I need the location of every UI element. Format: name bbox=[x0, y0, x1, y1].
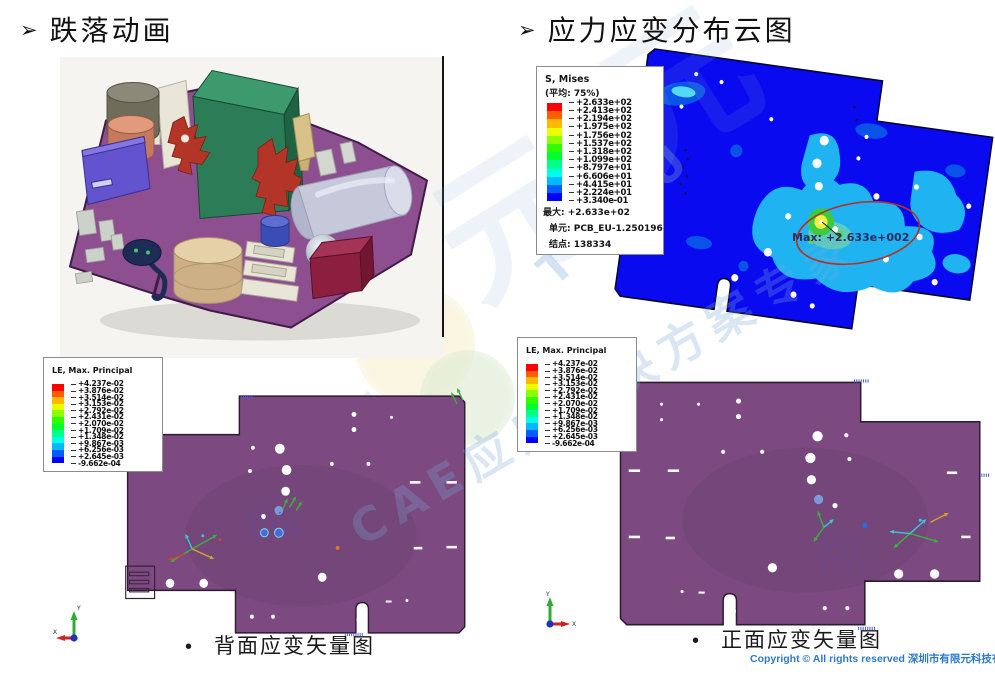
legend-tick bbox=[71, 410, 76, 411]
strain-speckle bbox=[291, 520, 293, 522]
hole bbox=[271, 615, 275, 619]
legend-color-band bbox=[547, 103, 562, 111]
legend-color-band bbox=[52, 450, 64, 457]
hole bbox=[894, 569, 903, 578]
strain-speckle bbox=[253, 525, 255, 527]
pad bbox=[446, 546, 457, 549]
strain-speckle bbox=[832, 557, 834, 559]
legend-color-band bbox=[526, 364, 538, 371]
hole bbox=[930, 569, 939, 578]
strain-speckle bbox=[285, 530, 287, 532]
hole bbox=[768, 563, 777, 572]
legend-color-band bbox=[52, 417, 64, 424]
strain-speckle bbox=[259, 511, 261, 513]
legend-color-band bbox=[52, 457, 64, 464]
slide: 元 元 TEMU CAE应用解决方案专家 ➢ 跌落动画 ➢ 应力应变分布云图 bbox=[0, 0, 995, 675]
marker-dot bbox=[201, 534, 204, 537]
hole bbox=[823, 606, 827, 610]
board-shading bbox=[682, 448, 928, 593]
strain-speckle bbox=[838, 544, 840, 546]
strain-speckle bbox=[293, 526, 295, 528]
legend-color-band bbox=[526, 410, 538, 417]
arrow-bullet-icon: ➢ bbox=[518, 16, 536, 46]
legend-title: S, Mises bbox=[545, 74, 589, 85]
strain-speckle bbox=[858, 561, 860, 563]
legend-tick bbox=[71, 391, 76, 392]
legend-color-band bbox=[547, 128, 562, 136]
front-caption-text: 正面应变矢量图 bbox=[721, 624, 882, 654]
legend-tick bbox=[545, 371, 550, 372]
strain-speckle bbox=[828, 543, 830, 545]
strain-speckle bbox=[854, 547, 856, 549]
legend-tick bbox=[569, 118, 574, 119]
strain-speckle bbox=[820, 550, 822, 552]
legend-tick-label: +3.340e-01 bbox=[569, 196, 628, 206]
legend-tick bbox=[545, 423, 550, 424]
stress-legend: S, Mises (平均: 75%) 最大: +2.633e+02 单元: PC… bbox=[536, 66, 664, 255]
strain-speckle bbox=[270, 516, 272, 518]
strain-speckle bbox=[834, 565, 836, 567]
strain-speckle bbox=[824, 564, 826, 566]
strain-speckle bbox=[849, 568, 851, 570]
legend-tick bbox=[545, 397, 550, 398]
copyright-line: Copyright © All rights reserved 深圳市有限元科技… bbox=[750, 651, 995, 666]
strain-speckle bbox=[250, 515, 252, 517]
x-axis-label: X bbox=[53, 629, 57, 636]
legend-color-band bbox=[547, 185, 562, 193]
legend-color-band bbox=[52, 410, 64, 417]
legend-tick bbox=[71, 417, 76, 418]
max-annotation-text: Max: +2.633e+002 bbox=[792, 231, 909, 244]
strain-speckle bbox=[818, 543, 820, 545]
legend-tick bbox=[569, 135, 574, 136]
strain-speckle bbox=[836, 537, 838, 539]
legend-tick bbox=[71, 450, 76, 451]
pad bbox=[410, 481, 421, 484]
legend-title: LE, Max. Principal bbox=[52, 366, 132, 375]
strain-speckle bbox=[261, 517, 263, 519]
relay-stack bbox=[241, 241, 299, 301]
legend-tick-label: -9.662e-04 bbox=[71, 459, 120, 468]
strain-legend-back: LE, Max. Principal +4.237e-02+3.876e-02+… bbox=[43, 357, 163, 472]
pcb-3d-model bbox=[60, 57, 443, 358]
pad bbox=[666, 537, 675, 540]
strain-speckle bbox=[269, 513, 271, 515]
hole bbox=[352, 427, 357, 432]
marker-dot bbox=[219, 538, 222, 541]
strain-speckle bbox=[286, 533, 288, 535]
x-axis-label: X bbox=[572, 621, 576, 628]
legend-tick bbox=[569, 159, 574, 160]
board-shading bbox=[185, 465, 416, 607]
legend-color-band bbox=[526, 437, 538, 444]
strain-speckle bbox=[264, 526, 266, 528]
hole bbox=[681, 590, 684, 593]
back-caption: • 背面应变矢量图 bbox=[185, 630, 375, 660]
legend-tick bbox=[545, 377, 550, 378]
legend-tick bbox=[545, 403, 550, 404]
axis-triad-front: Y X bbox=[532, 590, 578, 634]
legend-tick bbox=[545, 417, 550, 418]
strain-speckle bbox=[294, 529, 296, 531]
legend-tick bbox=[569, 184, 574, 185]
back-strain-vector-plot bbox=[118, 384, 484, 642]
marker-dot bbox=[919, 519, 922, 522]
marker-dot bbox=[336, 546, 340, 550]
strain-speckle bbox=[290, 514, 292, 516]
right-title-text: 应力应变分布云图 bbox=[548, 16, 796, 48]
legend-tick bbox=[569, 143, 574, 144]
legend-color-band bbox=[526, 417, 538, 424]
hole bbox=[814, 495, 823, 504]
legend-tick bbox=[71, 463, 76, 464]
legend-tick bbox=[569, 102, 574, 103]
legend-tick-label: -9.662e-04 bbox=[545, 439, 594, 448]
strain-speckle bbox=[255, 531, 257, 533]
strain-speckle bbox=[282, 521, 284, 523]
strain-speckle bbox=[271, 519, 273, 521]
strain-speckle bbox=[272, 522, 274, 524]
hole bbox=[844, 433, 848, 437]
strain-speckle bbox=[860, 568, 862, 570]
hole bbox=[845, 606, 849, 610]
strain-speckle bbox=[260, 514, 262, 516]
pad bbox=[629, 536, 640, 539]
hole bbox=[166, 579, 175, 588]
legend-tick bbox=[71, 404, 76, 405]
hole bbox=[281, 487, 290, 496]
legend-tick bbox=[71, 384, 76, 385]
pad bbox=[668, 469, 679, 472]
strain-ring bbox=[275, 528, 284, 537]
hole bbox=[275, 444, 285, 454]
pad bbox=[446, 481, 457, 484]
hole bbox=[406, 599, 409, 602]
hole bbox=[318, 573, 327, 582]
front-caption: • 正面应变矢量图 bbox=[692, 624, 882, 654]
strain-speckle bbox=[291, 517, 293, 519]
legend-tick bbox=[569, 176, 574, 177]
hole bbox=[390, 416, 393, 419]
legend-color-band bbox=[52, 404, 64, 411]
strain-speckle bbox=[830, 550, 832, 552]
legend-color-band bbox=[547, 160, 562, 168]
legend-tick bbox=[569, 192, 574, 193]
hole bbox=[199, 579, 208, 588]
strain-speckle bbox=[289, 511, 291, 513]
legend-max-line: 最大: +2.633e+02 bbox=[543, 205, 630, 218]
strain-speckle bbox=[268, 510, 270, 512]
legend-color-band bbox=[526, 397, 538, 404]
hole bbox=[697, 403, 700, 406]
pad bbox=[386, 601, 392, 603]
strain-speckle bbox=[864, 547, 866, 549]
strain-speckle bbox=[841, 539, 843, 541]
legend-color-band bbox=[52, 424, 64, 431]
hole bbox=[660, 418, 663, 421]
hole bbox=[731, 609, 736, 614]
legend-color-band bbox=[526, 371, 538, 378]
legend-color-band bbox=[526, 404, 538, 411]
legend-node-line: 结点: 138334 bbox=[549, 237, 611, 250]
legend-color-band bbox=[547, 177, 562, 185]
hole bbox=[250, 615, 254, 619]
strain-speckle bbox=[248, 509, 250, 511]
dot-bullet-icon: • bbox=[185, 636, 192, 659]
strain-speckle bbox=[283, 524, 285, 526]
legend-tick bbox=[569, 110, 574, 111]
strain-speckle bbox=[844, 565, 846, 567]
legend-tick bbox=[545, 443, 550, 444]
strain-speckle bbox=[287, 536, 289, 538]
legend-tick bbox=[569, 200, 574, 201]
strain-speckle bbox=[273, 525, 275, 527]
axis-triad-back: Y X bbox=[52, 604, 98, 648]
legend-color-band bbox=[526, 390, 538, 397]
strain-speckle bbox=[862, 540, 864, 542]
strain-speckle bbox=[263, 523, 265, 525]
legend-tick bbox=[71, 397, 76, 398]
legend-color-band bbox=[526, 423, 538, 430]
capacitor-beige bbox=[174, 238, 242, 304]
strain-legend-front: LE, Max. Principal +4.237e-02+3.876e-02+… bbox=[517, 337, 637, 452]
pad bbox=[629, 469, 640, 472]
strain-speckle bbox=[249, 512, 251, 514]
legend-color-band bbox=[547, 136, 562, 144]
strain-speckle bbox=[840, 551, 842, 553]
y-axis-label: Y bbox=[545, 591, 550, 598]
hole bbox=[832, 503, 837, 508]
hole bbox=[352, 412, 357, 417]
strain-speckle bbox=[251, 518, 253, 520]
strain-speckle bbox=[847, 561, 849, 563]
hole bbox=[807, 475, 816, 484]
hole bbox=[721, 450, 725, 454]
legend-color-band bbox=[526, 384, 538, 391]
strain-speckle bbox=[292, 523, 294, 525]
pad bbox=[699, 592, 705, 594]
strain-ring bbox=[261, 529, 269, 537]
legend-tick bbox=[569, 126, 574, 127]
hole bbox=[736, 398, 741, 403]
strain-speckle bbox=[821, 568, 823, 570]
legend-tick bbox=[71, 443, 76, 444]
section-divider bbox=[442, 56, 444, 337]
legend-color-band bbox=[526, 430, 538, 437]
legend-color-band bbox=[547, 169, 562, 177]
legend-tick bbox=[545, 436, 550, 437]
legend-color-band bbox=[547, 111, 562, 119]
strain-speckle bbox=[256, 534, 258, 536]
capacitor-blue bbox=[261, 216, 289, 247]
strain-speckle bbox=[257, 537, 259, 539]
hole bbox=[812, 431, 822, 441]
hole bbox=[805, 453, 815, 463]
hole bbox=[356, 617, 361, 622]
marker-dot bbox=[862, 523, 867, 528]
hole bbox=[366, 462, 370, 466]
legend-tick bbox=[545, 384, 550, 385]
legend-tick bbox=[545, 410, 550, 411]
legend-color-band bbox=[52, 391, 64, 398]
drop-animation-panel bbox=[60, 57, 443, 358]
hole bbox=[660, 403, 663, 406]
dot-bullet-icon: • bbox=[692, 630, 699, 653]
legend-tick bbox=[71, 456, 76, 457]
legend-color-band bbox=[52, 437, 64, 444]
legend-title: LE, Max. Principal bbox=[526, 346, 606, 355]
strain-speckle bbox=[842, 558, 844, 560]
legend-color-band bbox=[526, 377, 538, 384]
legend-color-band bbox=[547, 119, 562, 127]
strain-speckle bbox=[254, 528, 256, 530]
hole bbox=[275, 506, 284, 515]
strain-speckle bbox=[295, 532, 297, 534]
legend-tick bbox=[545, 430, 550, 431]
pad bbox=[947, 471, 957, 474]
legend-color-band bbox=[52, 430, 64, 437]
back-caption-text: 背面应变矢量图 bbox=[214, 630, 375, 660]
pad bbox=[961, 536, 970, 539]
arrow-bullet-icon: ➢ bbox=[20, 16, 38, 46]
strain-speckle bbox=[281, 518, 283, 520]
legend-tick bbox=[545, 390, 550, 391]
hole bbox=[760, 450, 764, 454]
heatsink-hole bbox=[181, 135, 189, 143]
strain-speckle bbox=[819, 561, 821, 563]
pad bbox=[414, 547, 423, 550]
hole bbox=[736, 414, 741, 419]
strain-speckle bbox=[852, 540, 854, 542]
legend-color-band bbox=[52, 397, 64, 404]
strain-speckle bbox=[856, 554, 858, 556]
legend-tick bbox=[569, 167, 574, 168]
legend-color-band bbox=[547, 152, 562, 160]
hole bbox=[251, 446, 255, 450]
strain-speckle bbox=[845, 554, 847, 556]
strain-speckle bbox=[817, 554, 819, 556]
legend-tick bbox=[71, 437, 76, 438]
hole bbox=[847, 457, 851, 461]
strain-speckle bbox=[284, 527, 286, 529]
legend-tick bbox=[71, 430, 76, 431]
left-section-title: ➢ 跌落动画 bbox=[20, 16, 174, 48]
strain-speckle bbox=[296, 535, 298, 537]
legend-color-band bbox=[52, 443, 64, 450]
y-axis-label: Y bbox=[76, 605, 81, 612]
legend-color-band bbox=[52, 384, 64, 391]
strain-speckle bbox=[280, 515, 282, 517]
strain-speckle bbox=[843, 547, 845, 549]
legend-tick bbox=[71, 423, 76, 424]
strain-speckle bbox=[279, 512, 281, 514]
legend-tick bbox=[569, 151, 574, 152]
legend-color-band bbox=[547, 193, 562, 201]
strain-speckle bbox=[826, 536, 828, 538]
strain-speckle bbox=[822, 557, 824, 559]
strain-speckle bbox=[262, 520, 264, 522]
left-title-text: 跌落动画 bbox=[50, 16, 174, 48]
hole bbox=[330, 462, 334, 466]
legend-color-band bbox=[547, 144, 562, 152]
maroon-box bbox=[310, 237, 374, 299]
right-section-title: ➢ 应力应变分布云图 bbox=[518, 16, 796, 48]
strain-speckle bbox=[252, 521, 254, 523]
hole bbox=[248, 469, 252, 473]
front-strain-vector-plot bbox=[600, 370, 990, 634]
legend-tick bbox=[545, 364, 550, 365]
hole bbox=[282, 465, 292, 475]
legend-element-line: 单元: PCB_EU-1.250196 bbox=[549, 221, 663, 234]
